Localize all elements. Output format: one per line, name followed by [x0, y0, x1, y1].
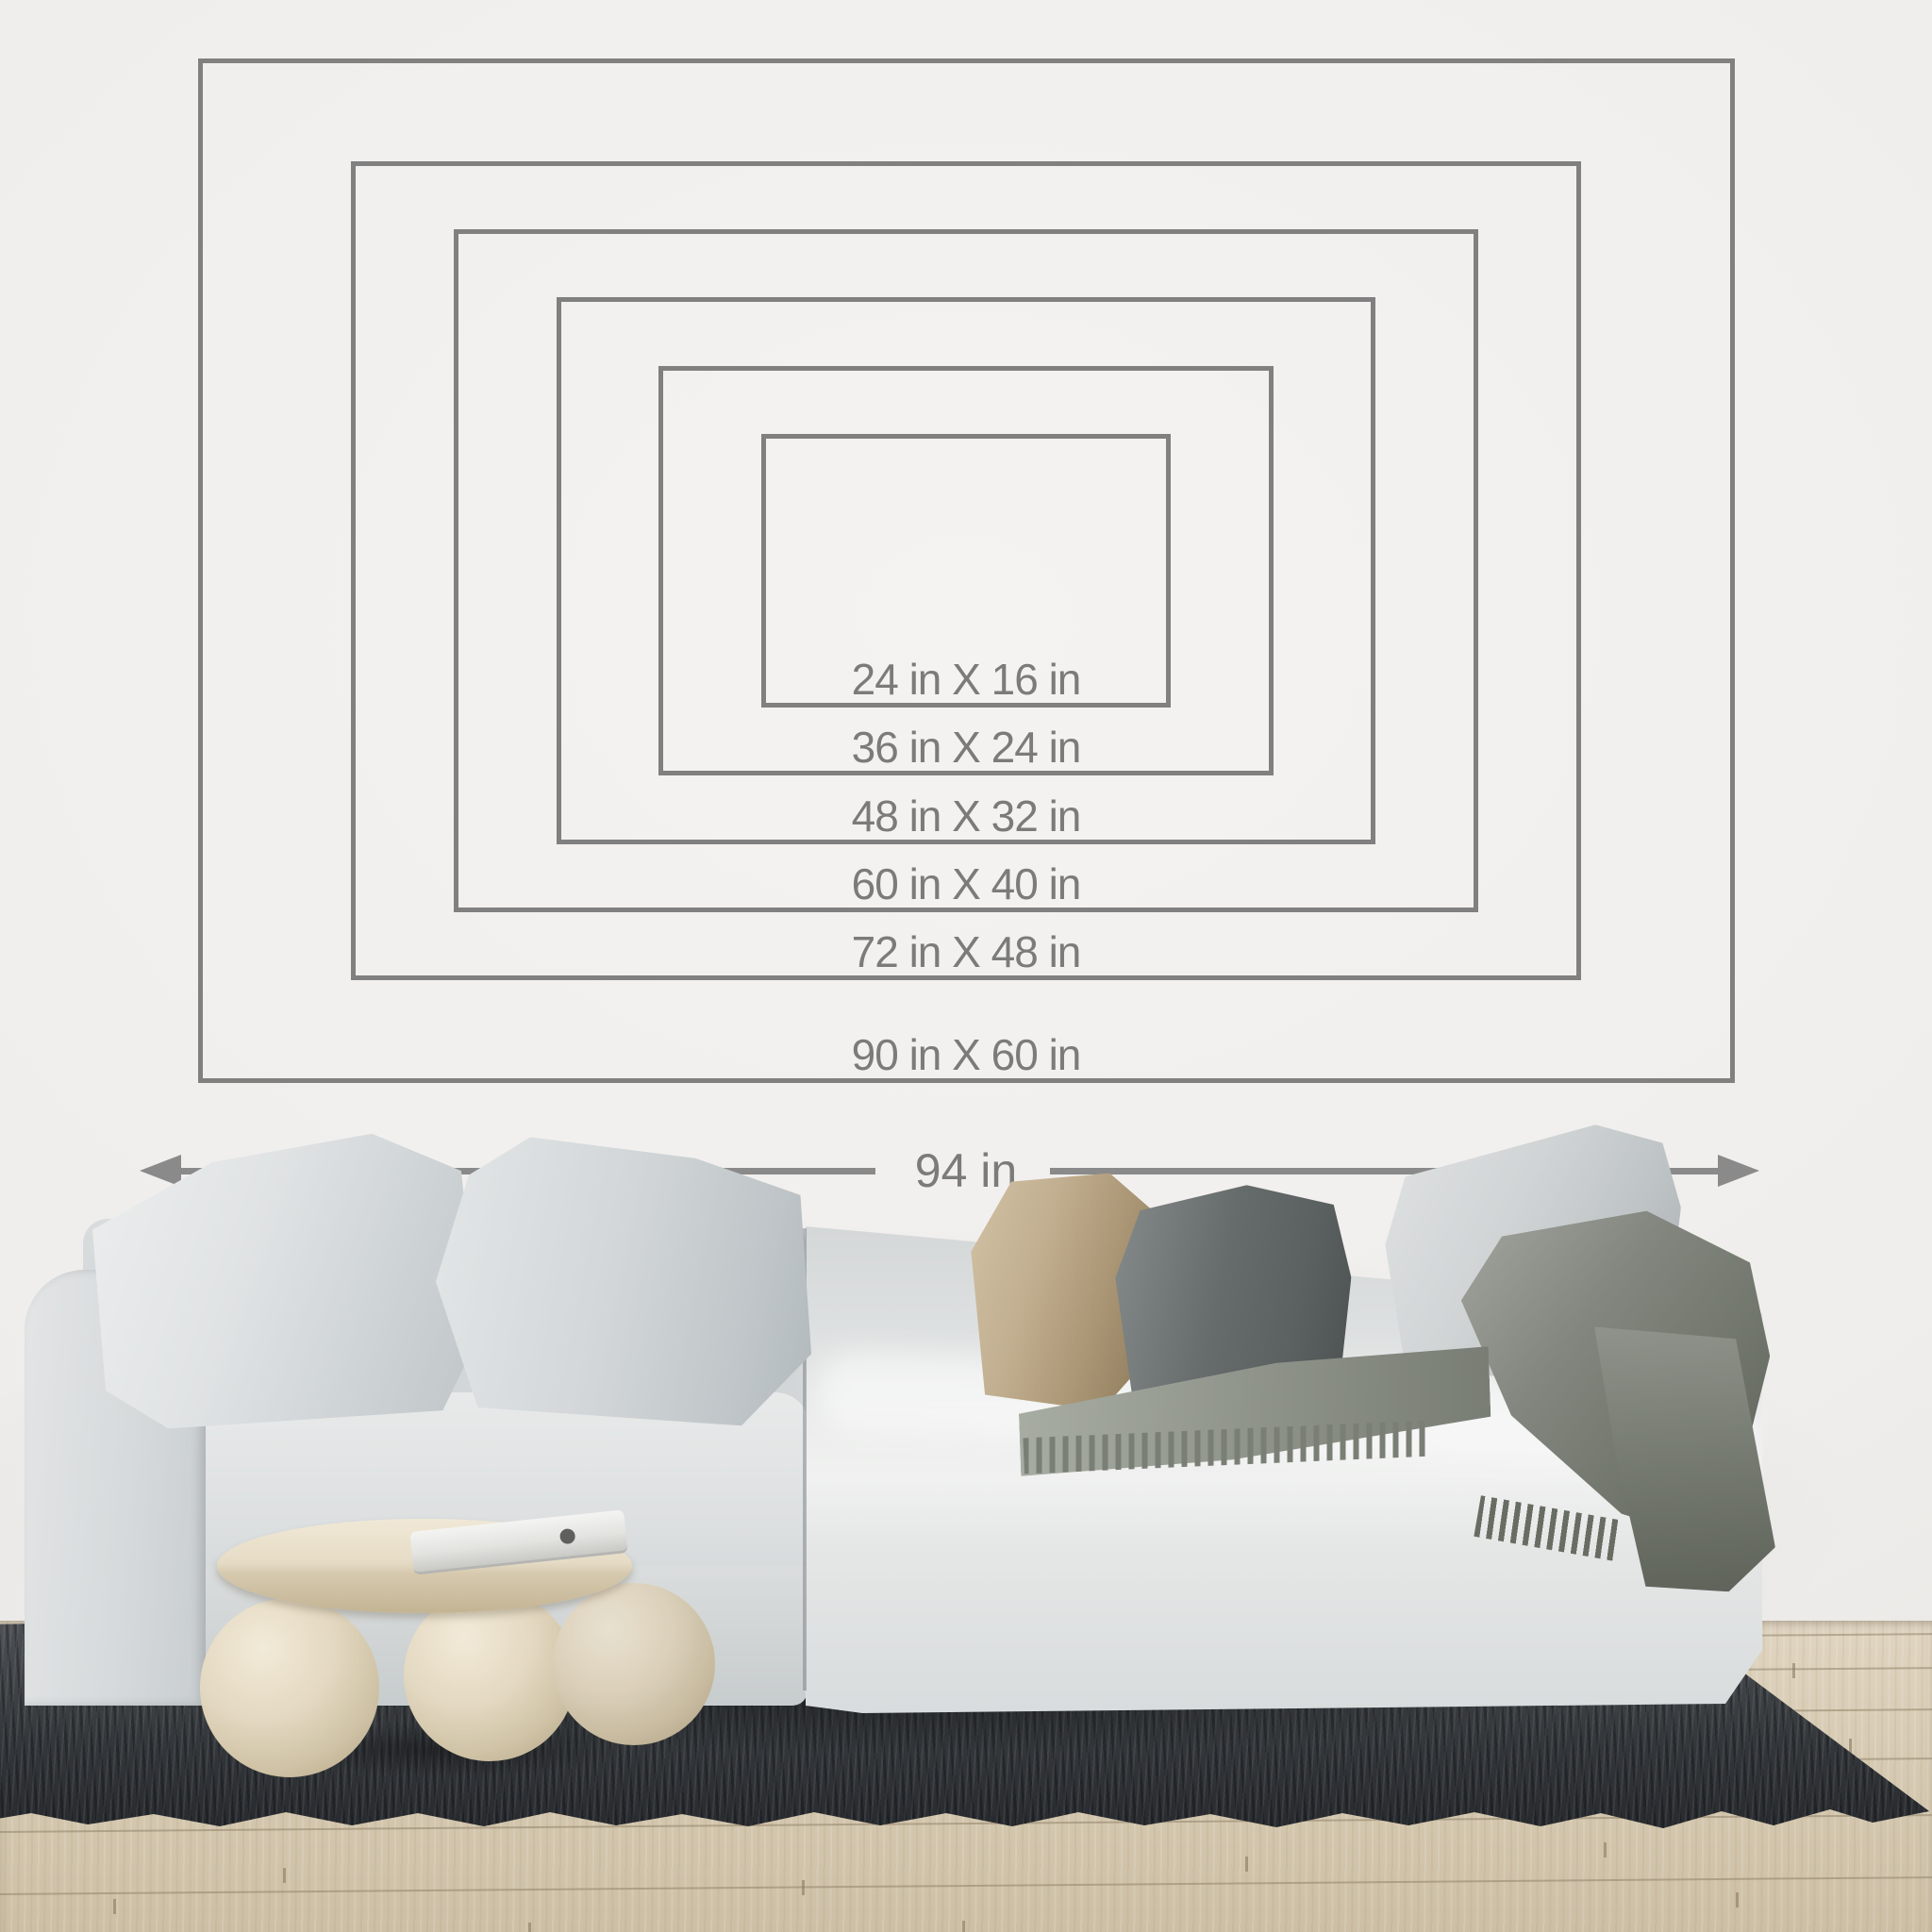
laptop-logo-icon [559, 1528, 576, 1545]
floor-plank-joint [283, 1868, 286, 1883]
size-chart-mockup: 24 in X 16 in36 in X 24 in48 in X 32 in6… [0, 0, 1932, 1932]
floor-plank-joint [1736, 1892, 1739, 1907]
floor-plank-joint [1849, 1739, 1852, 1754]
width-arrow-head-right [1718, 1155, 1759, 1187]
floor-plank-joint [802, 1880, 805, 1895]
floor-plank-joint [528, 1923, 531, 1932]
width-arrow-head-left [140, 1155, 181, 1187]
table-ball-leg-right [553, 1583, 715, 1745]
size-rect-90x60 [198, 58, 1735, 1083]
floor-plank-joint [962, 1921, 965, 1932]
floor-plank-joint [113, 1899, 116, 1914]
floor-plank-joint [1245, 1857, 1248, 1872]
wall-width-label: 94 in [915, 1147, 1017, 1194]
floor-plank-joint [1604, 1842, 1607, 1857]
size-label-90x60: 90 in X 60 in [852, 1033, 1081, 1076]
table-ball-leg-middle [404, 1590, 575, 1761]
floor-plank-line [0, 1876, 1932, 1895]
floor-plank-joint [1792, 1663, 1795, 1678]
table-ball-leg-left [200, 1598, 379, 1777]
